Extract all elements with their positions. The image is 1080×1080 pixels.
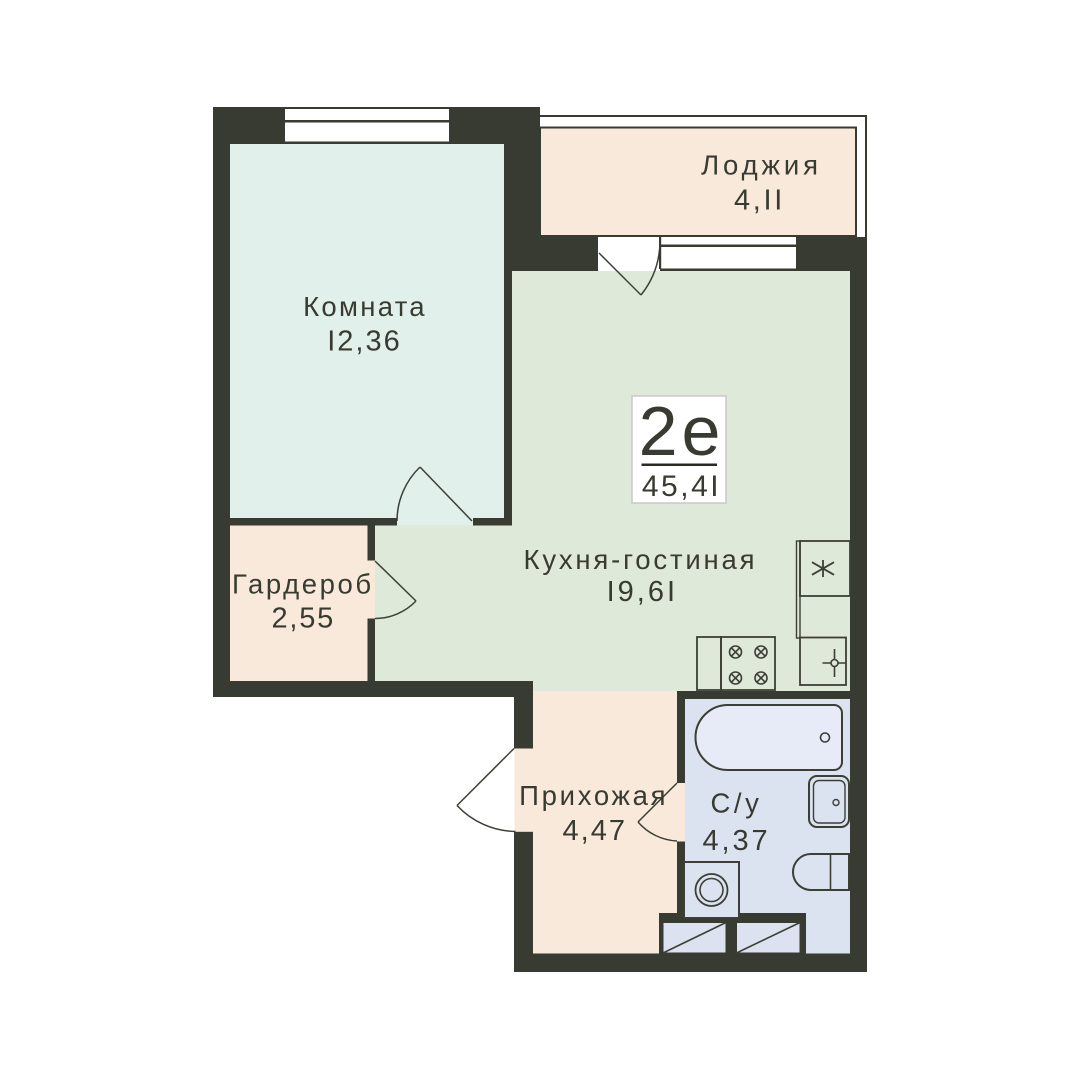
svg-text:Гардероб: Гардероб — [232, 569, 374, 600]
svg-text:I2,36: I2,36 — [327, 326, 402, 358]
svg-text:Лоджия: Лоджия — [701, 150, 822, 181]
svg-text:2,55: 2,55 — [271, 603, 335, 635]
svg-text:Прихожая: Прихожая — [519, 780, 668, 811]
svg-text:Комната: Комната — [303, 291, 427, 322]
svg-text:2е: 2е — [639, 392, 725, 470]
svg-text:С/у: С/у — [710, 788, 762, 819]
svg-text:45,4I: 45,4I — [642, 470, 721, 503]
svg-text:Кухня-гостиная: Кухня-гостиная — [524, 544, 758, 575]
svg-text:4,II: 4,II — [734, 185, 785, 217]
svg-text:4,47: 4,47 — [562, 815, 627, 847]
svg-text:4,37: 4,37 — [702, 825, 770, 857]
svg-text:I9,6I: I9,6I — [607, 576, 678, 608]
